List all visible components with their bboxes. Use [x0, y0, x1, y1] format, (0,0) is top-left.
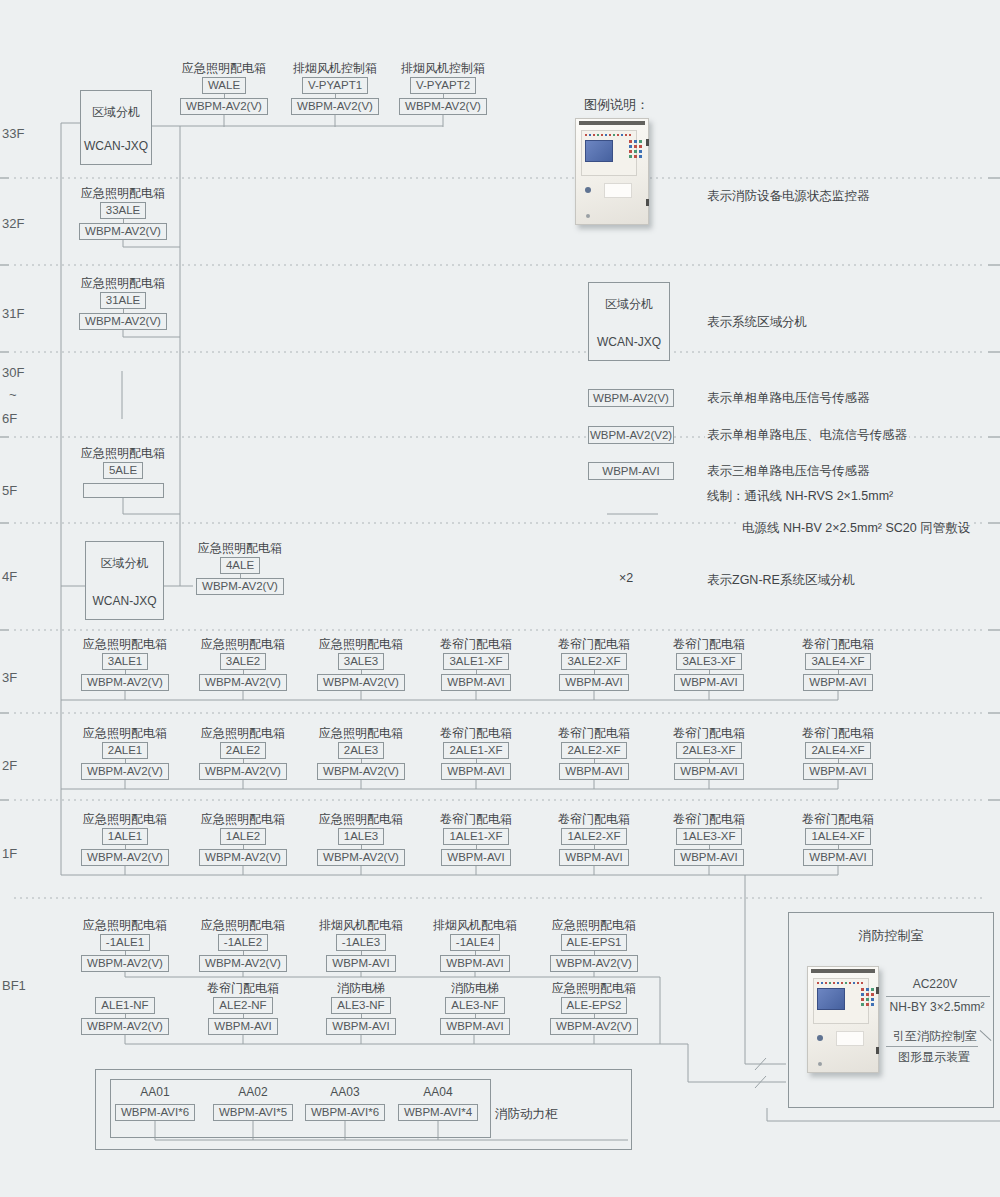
sensor-box: WBPM-AVI	[559, 674, 628, 691]
sensor-box: WBPM-AVI	[441, 763, 510, 780]
device-control-panel	[581, 130, 637, 176]
zone-title: 区域分机	[92, 104, 140, 121]
feeder-code: AA04	[423, 1085, 452, 1100]
unit-code-box: 1ALE1	[102, 828, 149, 845]
floor-label-3f: 3F	[2, 670, 17, 685]
device-top-strip	[811, 969, 875, 973]
unit-code-box: 2ALE2-XF	[561, 742, 626, 759]
zone-title: 区域分机	[605, 296, 653, 313]
unit-code-box: 2ALE2	[220, 742, 267, 759]
unit-2ale2: 应急照明配电箱 2ALE2 WBPM-AV2(V)	[178, 726, 308, 780]
unit-2ale1: 应急照明配电箱 2ALE1 WBPM-AV2(V)	[60, 726, 190, 780]
unit-code-box: 2ALE3	[338, 742, 385, 759]
unit-2ale3-xf: 卷帘门配电箱 2ALE3-XF WBPM-AVI	[644, 726, 774, 780]
unit-title: 应急照明配电箱	[83, 918, 167, 932]
empty-sensor-box	[83, 483, 164, 498]
unit-title: 应急照明配电箱	[201, 637, 285, 651]
sensor-box: WBPM-AV2(V)	[79, 223, 167, 240]
device-indicator-leds	[585, 134, 587, 136]
unit-title: 卷帘门配电箱	[558, 726, 630, 740]
device-hinge	[646, 139, 649, 146]
supply-cable-label: NH-BY 3×2.5mm²	[882, 1000, 992, 1014]
unit-2ale3: 应急照明配电箱 2ALE3 WBPM-AV2(V)	[296, 726, 426, 780]
unit-title: 应急照明配电箱	[198, 541, 282, 555]
sensor-box: WBPM-AV2(V)	[399, 98, 487, 115]
unit-2ale1-xf: 卷帘门配电箱 2ALE1-XF WBPM-AVI	[411, 726, 541, 780]
legend-sensor3-symbol: WBPM-AVI	[588, 462, 674, 480]
unit-title: 应急照明配电箱	[83, 637, 167, 651]
feeder-aa04: AA04 WBPM-AVI*4	[373, 1085, 503, 1121]
unit-code-box: 1ALE4-XF	[805, 828, 870, 845]
sensor-box: WBPM-AV2(V)	[196, 578, 284, 595]
sensor-box: WBPM-AV2(V)	[317, 849, 405, 866]
unit-4ale: 应急照明配电箱 4ALE WBPM-AV2(V)	[175, 541, 305, 595]
unit-title: 应急照明配电箱	[201, 812, 285, 826]
device-top-strip	[579, 121, 645, 125]
sensor-box: WBPM-AV2(V)	[550, 955, 638, 972]
unit-v-pyapt2: 排烟风机控制箱 V-PYAPT2 WBPM-AV2(V)	[378, 61, 508, 115]
unit-code-box: 5ALE	[103, 462, 143, 479]
voltage-underline	[886, 996, 990, 997]
feeder-code: AA03	[330, 1085, 359, 1100]
unit-ale2-nf: 卷帘门配电箱 ALE2-NF WBPM-AVI	[178, 981, 308, 1035]
sensor-box: WBPM-AVI	[803, 763, 872, 780]
unit-code-box: -1ALE3	[336, 934, 386, 951]
unit-title: 消防电梯	[337, 981, 385, 995]
unit-code-box: 3ALE3	[338, 653, 385, 670]
unit-code-box: 1ALE2	[220, 828, 267, 845]
unit-1ale2: 应急照明配电箱 1ALE2 WBPM-AV2(V)	[178, 812, 308, 866]
unit-code-box: 31ALE	[100, 292, 147, 309]
sensor-box: WBPM-AV2(V)	[317, 763, 405, 780]
unit-code-box: ALE-EPS2	[561, 997, 628, 1014]
device-control-panel	[813, 978, 869, 1024]
zone-model: WCAN-JXQ	[93, 594, 157, 608]
device-indicator-leds	[817, 982, 819, 984]
unit-1ale1-xf: 卷帘门配电箱 1ALE1-XF WBPM-AVI	[411, 812, 541, 866]
unit-ale1-nf: ALE1-NF WBPM-AV2(V)	[60, 981, 190, 1035]
unit-code-box: ALE-EPS1	[561, 934, 628, 951]
destination-underline	[886, 1046, 978, 1047]
unit-title: 排烟风机控制箱	[293, 61, 377, 75]
unit-2ale2-xf: 卷帘门配电箱 2ALE2-XF WBPM-AVI	[529, 726, 659, 780]
unit-code-box: 1ALE3	[338, 828, 385, 845]
unit-1ale1: 应急照明配电箱 1ALE1 WBPM-AV2(V)	[60, 812, 190, 866]
zone-model: WCAN-JXQ	[597, 335, 661, 349]
sensor-box: WBPM-AV2(V)	[199, 674, 287, 691]
unit-code-box: 3ALE4-XF	[805, 653, 870, 670]
unit-title: 应急照明配电箱	[319, 726, 403, 740]
unit-code-box: 1ALE2-XF	[561, 828, 626, 845]
unit-code-box: ALE1-NF	[95, 997, 154, 1014]
unit-ale-eps1: 应急照明配电箱 ALE-EPS1 WBPM-AV2(V)	[529, 918, 659, 972]
unit-title: 应急照明配电箱	[81, 186, 165, 200]
floor-label-33f: 33F	[2, 126, 24, 141]
floor-label-range-tilde: ~	[9, 387, 17, 402]
legend-title: 图例说明：	[582, 96, 651, 114]
legend-wire-note-2: 电源线 NH-BV 2×2.5mm² SC20 同管敷设	[740, 520, 972, 537]
sensor-box: WBPM-AVI	[440, 1018, 509, 1035]
unit-code-box: 1ALE1-XF	[443, 828, 508, 845]
unit-neg1ale1: 应急照明配电箱 -1ALE1 WBPM-AV2(V)	[60, 918, 190, 972]
unit-title: 应急照明配电箱	[81, 446, 165, 460]
sensor-box: WBPM-AV2(V)	[81, 849, 169, 866]
sensor-box: WBPM-AV2(V)	[81, 1018, 169, 1035]
unit-3ale1: 应急照明配电箱 3ALE1 WBPM-AV2(V)	[60, 637, 190, 691]
unit-3ale4-xf: 卷帘门配电箱 3ALE4-XF WBPM-AVI	[773, 637, 903, 691]
unit-3ale3-xf: 卷帘门配电箱 3ALE3-XF WBPM-AVI	[644, 637, 774, 691]
device-name-plate	[836, 1031, 864, 1046]
unit-title: 卷帘门配电箱	[673, 726, 745, 740]
supply-voltage-label: AC220V	[885, 977, 985, 991]
unit-title: 卷帘门配电箱	[207, 981, 279, 995]
legend-wire-note-1: 线制：通讯线 NH-RVS 2×1.5mm²	[705, 488, 895, 505]
unit-1ale2-xf: 卷帘门配电箱 1ALE2-XF WBPM-AVI	[529, 812, 659, 866]
zone-extension-4f: 区域分机 WCAN-JXQ	[85, 541, 164, 620]
cable-cross-ticks	[755, 1058, 766, 1088]
sensor-box: WBPM-AV2(V)	[291, 98, 379, 115]
unit-code-box: 3ALE2-XF	[561, 653, 626, 670]
sensor-box: WBPM-AV2(V)	[81, 955, 169, 972]
sensor-box: WBPM-AVI	[803, 674, 872, 691]
unit-title: 排烟风机配电箱	[433, 918, 517, 932]
sensor-box: WBPM-AV2(V)	[79, 313, 167, 330]
unit-code-box: WALE	[202, 77, 246, 94]
unit-code-box: -1ALE2	[218, 934, 268, 951]
feeder-code: AA02	[238, 1085, 267, 1100]
legend-sensor1-caption: 表示单相单路电压信号传感器	[705, 390, 872, 407]
unit-title: 应急照明配电箱	[83, 726, 167, 740]
unit-code-box: -1ALE4	[450, 934, 500, 951]
unit-title: 卷帘门配电箱	[558, 812, 630, 826]
unit-code-box: 2ALE4-XF	[805, 742, 870, 759]
unit-3ale2: 应急照明配电箱 3ALE2 WBPM-AV2(V)	[178, 637, 308, 691]
unit-title: 卷帘门配电箱	[802, 726, 874, 740]
unit-code-box: ALE3-NF	[331, 997, 390, 1014]
unit-neg1ale2: 应急照明配电箱 -1ALE2 WBPM-AV2(V)	[178, 918, 308, 972]
sensor-box: WBPM-AVI	[208, 1018, 277, 1035]
floor-label-31f: 31F	[2, 306, 24, 321]
unit-code-box: ALE3-NF	[445, 997, 504, 1014]
unit-code-box: V-PYAPT1	[302, 77, 368, 94]
unit-code-box: 3ALE2	[220, 653, 267, 670]
legend-sensor1-symbol: WBPM-AV2(V)	[588, 389, 674, 407]
floor-label-4f: 4F	[2, 569, 17, 584]
device-lock-knob	[585, 187, 591, 193]
device-lcd-screen	[585, 140, 613, 162]
unit-5ale: 应急照明配电箱 5ALE	[58, 446, 188, 498]
unit-title: 应急照明配电箱	[83, 812, 167, 826]
fire-power-monitor-image	[575, 118, 649, 225]
unit-code-box: 4ALE	[220, 557, 260, 574]
unit-title: 卷帘门配电箱	[558, 637, 630, 651]
unit-ale3-nf-2: 消防电梯 ALE3-NF WBPM-AVI	[410, 981, 540, 1035]
floor-label-5f: 5F	[2, 483, 17, 498]
legend-zone-caption: 表示系统区域分机	[705, 314, 809, 331]
sensor-box: WBPM-AVI	[674, 763, 743, 780]
unit-33ale: 应急照明配电箱 33ALE WBPM-AV2(V)	[58, 186, 188, 240]
feeder-code: AA01	[140, 1085, 169, 1100]
sensor-box: WBPM-AVI	[674, 849, 743, 866]
unit-title: 应急照明配电箱	[81, 276, 165, 290]
device-lock-knob	[817, 1035, 823, 1041]
unit-neg1ale4: 排烟风机配电箱 -1ALE4 WBPM-AVI	[410, 918, 540, 972]
sensor-box: WBPM-AV2(V)	[81, 674, 169, 691]
legend-zone-extension-symbol: 区域分机 WCAN-JXQ	[588, 282, 670, 361]
unit-title: 卷帘门配电箱	[440, 726, 512, 740]
sensor-box: WBPM-AVI	[441, 674, 510, 691]
sensor-box: WBPM-AVI	[559, 763, 628, 780]
unit-title: 应急照明配电箱	[201, 726, 285, 740]
legend-device-caption: 表示消防设备电源状态监控器	[705, 188, 872, 205]
unit-code-box: ALE2-NF	[213, 997, 272, 1014]
basement-bus-lines	[125, 875, 786, 1082]
unit-title: 卷帘门配电箱	[673, 637, 745, 651]
device-key-buttons	[861, 988, 864, 991]
device-lcd-screen	[817, 988, 845, 1010]
sensor-box: WBPM-AVI*4	[398, 1104, 478, 1121]
destination-line2: 图形显示装置	[889, 1049, 979, 1066]
sensor-box: WBPM-AV2(V)	[199, 763, 287, 780]
unit-title: 应急照明配电箱	[319, 812, 403, 826]
floor-label-32f: 32F	[2, 216, 24, 231]
floor-label-bf1: BF1	[2, 978, 26, 993]
unit-title: 卷帘门配电箱	[673, 812, 745, 826]
floor-label-1f: 1F	[2, 846, 17, 861]
unit-title: 卷帘门配电箱	[802, 637, 874, 651]
sensor-box: WBPM-AV2(V)	[550, 1018, 638, 1035]
device-name-plate	[604, 183, 632, 198]
zone-model: WCAN-JXQ	[84, 139, 148, 153]
unit-code-box: 2ALE1	[102, 742, 149, 759]
unit-1ale4-xf: 卷帘门配电箱 1ALE4-XF WBPM-AVI	[773, 812, 903, 866]
sensor-box: WBPM-AVI	[559, 849, 628, 866]
unit-title: 卷帘门配电箱	[802, 812, 874, 826]
sensor-box: WBPM-AV2(V)	[81, 763, 169, 780]
unit-title: 卷帘门配电箱	[440, 812, 512, 826]
legend-sensor2-caption: 表示单相单路电压、电流信号传感器	[705, 427, 909, 444]
unit-code-box: 2ALE3-XF	[676, 742, 741, 759]
unit-code-box: 1ALE3-XF	[676, 828, 741, 845]
unit-title: 应急照明配电箱	[552, 918, 636, 932]
legend-sensor2-symbol: WBPM-AV2(V2)	[588, 426, 674, 444]
sensor-box: WBPM-AV2(V)	[199, 955, 287, 972]
unit-title: 应急照明配电箱	[201, 918, 285, 932]
floor-label-2f: 2F	[2, 758, 17, 773]
sensor-box: WBPM-AVI	[326, 955, 395, 972]
sensor-box: WBPM-AV2(V)	[317, 674, 405, 691]
fire-power-monitor-image	[807, 966, 879, 1073]
unit-code-box: 3ALE3-XF	[676, 653, 741, 670]
unit-code-box: V-PYAPT2	[410, 77, 476, 94]
unit-ale-eps2: 应急照明配电箱 ALE-EPS2 WBPM-AV2(V)	[529, 981, 659, 1035]
floor-label-6f: 6F	[2, 411, 17, 426]
legend-multiplier-symbol: ×2	[617, 571, 635, 585]
unit-3ale2-xf: 卷帘门配电箱 3ALE2-XF WBPM-AVI	[529, 637, 659, 691]
unit-title: 排烟风机控制箱	[401, 61, 485, 75]
unit-1ale3-xf: 卷帘门配电箱 1ALE3-XF WBPM-AVI	[644, 812, 774, 866]
unit-1ale3: 应急照明配电箱 1ALE3 WBPM-AV2(V)	[296, 812, 426, 866]
unit-title: 卷帘门配电箱	[440, 637, 512, 651]
legend-sensor3-caption: 表示三相单路电压信号传感器	[705, 463, 872, 480]
floor-label-30f: 30F	[2, 365, 24, 380]
unit-title: 应急照明配电箱	[552, 981, 636, 995]
fire-control-room-box: 消防控制室 AC220V NH-BY 3×2.5mm² 引至消防控制室 图形显示…	[788, 912, 994, 1108]
zone-title: 区域分机	[101, 555, 149, 572]
sensor-box: WBPM-AVI	[440, 955, 509, 972]
unit-3ale1-xf: 卷帘门配电箱 3ALE1-XF WBPM-AVI	[411, 637, 541, 691]
unit-code-box: 33ALE	[100, 202, 147, 219]
sensor-box: WBPM-AVI*6	[115, 1104, 195, 1121]
fire-power-monitoring-system-diagram: 33F 32F 31F 30F ~ 6F 5F 4F 3F 2F 1F BF1 …	[0, 0, 1000, 1197]
unit-title: 应急照明配电箱	[182, 61, 266, 75]
sensor-box: WBPM-AVI	[326, 1018, 395, 1035]
unit-3ale3: 应急照明配电箱 3ALE3 WBPM-AV2(V)	[296, 637, 426, 691]
sensor-box: WBPM-AVI	[803, 849, 872, 866]
unit-title: 排烟风机配电箱	[319, 918, 403, 932]
unit-title: 消防电梯	[451, 981, 499, 995]
sensor-box: WBPM-AVI	[674, 674, 743, 691]
sensor-box: WBPM-AV2(V)	[199, 849, 287, 866]
unit-code-box: 2ALE1-XF	[443, 742, 508, 759]
unit-31ale: 应急照明配电箱 31ALE WBPM-AV2(V)	[58, 276, 188, 330]
unit-neg1ale3: 排烟风机配电箱 -1ALE3 WBPM-AVI	[296, 918, 426, 972]
legend-multiplier-caption: 表示ZGN-RE系统区域分机	[705, 572, 857, 589]
control-room-title: 消防控制室	[789, 927, 993, 945]
device-hinge	[876, 987, 879, 994]
unit-title: 应急照明配电箱	[319, 637, 403, 651]
unit-2ale4-xf: 卷帘门配电箱 2ALE4-XF WBPM-AVI	[773, 726, 903, 780]
destination-line1: 引至消防控制室	[887, 1028, 983, 1045]
unit-ale3-nf-1: 消防电梯 ALE3-NF WBPM-AVI	[296, 981, 426, 1035]
sensor-box: WBPM-AV2(V)	[180, 98, 268, 115]
sensor-box: WBPM-AVI	[441, 849, 510, 866]
unit-code-box: 3ALE1-XF	[443, 653, 508, 670]
zone-extension-33f: 区域分机 WCAN-JXQ	[80, 90, 152, 165]
unit-code-box: -1ALE1	[100, 934, 150, 951]
device-key-buttons	[629, 140, 632, 143]
unit-code-box: 3ALE1	[102, 653, 149, 670]
